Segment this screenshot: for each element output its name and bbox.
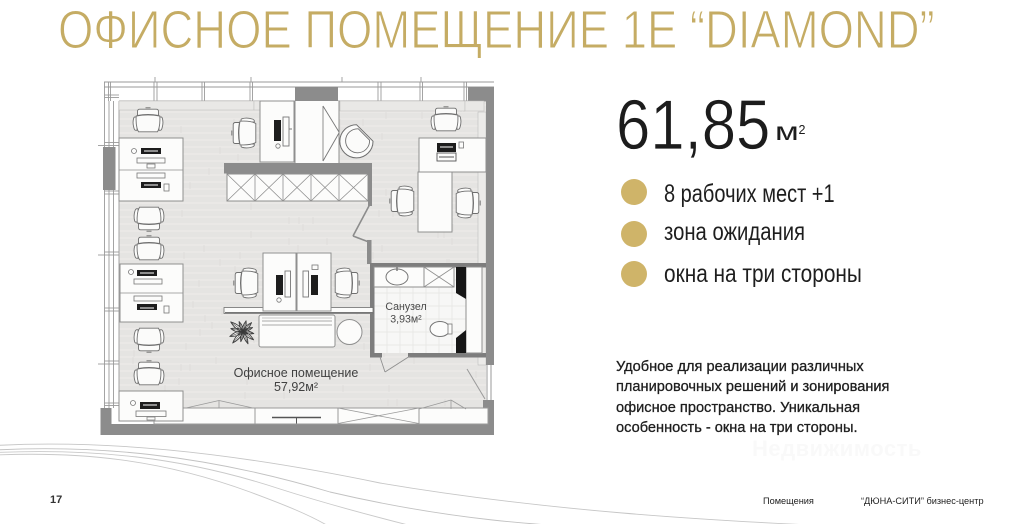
svg-text:57,92м²: 57,92м² bbox=[274, 380, 318, 394]
svg-text:Офисное помещение: Офисное помещение bbox=[234, 366, 359, 380]
svg-text:Санузел: Санузел bbox=[385, 301, 426, 313]
svg-text:3,93м²: 3,93м² bbox=[390, 314, 422, 326]
